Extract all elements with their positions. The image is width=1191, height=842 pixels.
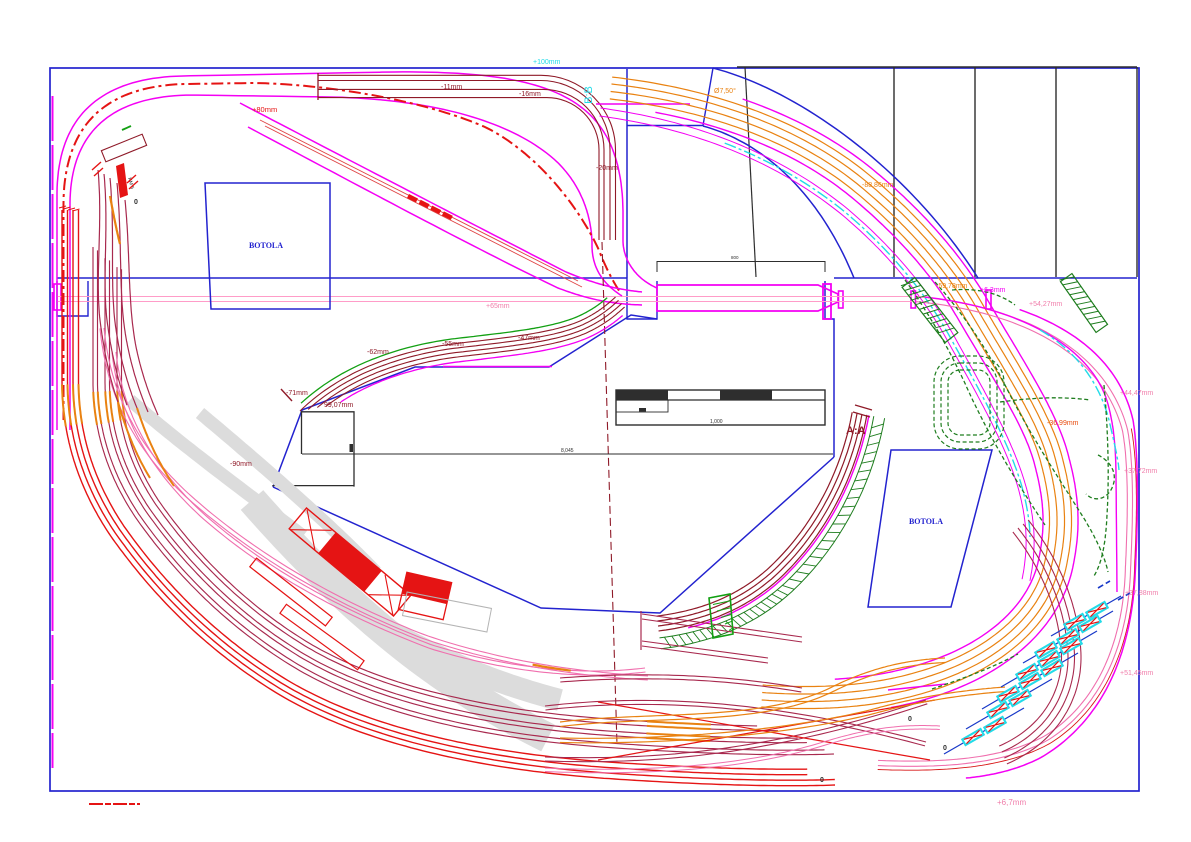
svg-text:0: 0 xyxy=(943,745,947,752)
svg-text:0: 0 xyxy=(820,777,824,784)
svg-text:+44,47mm: +44,47mm xyxy=(1120,390,1153,397)
svg-text:+51,45mm: +51,45mm xyxy=(1120,670,1153,677)
svg-text:-88,86mm: -88,86mm xyxy=(862,182,894,189)
svg-text:-71mm: -71mm xyxy=(286,390,308,397)
svg-text:+37,88mm: +37,88mm xyxy=(1125,590,1158,597)
svg-text:B:B: B:B xyxy=(583,86,595,104)
svg-text:-20mm: -20mm xyxy=(596,165,618,172)
svg-text:-16mm: -16mm xyxy=(519,91,541,98)
svg-text:-62mm: -62mm xyxy=(367,349,389,356)
svg-text:+6,3mm: +6,3mm xyxy=(980,287,1006,294)
svg-text:A:A: A:A xyxy=(846,425,866,437)
svg-text:BOTOLA: BOTOLA xyxy=(909,517,943,526)
svg-text:-36,99mm: -36,99mm xyxy=(1047,420,1079,427)
svg-text:+100mm: +100mm xyxy=(533,59,561,66)
svg-text:-55mm: -55mm xyxy=(442,341,464,348)
svg-text:99,07mm: 99,07mm xyxy=(324,402,353,409)
svg-text:0: 0 xyxy=(134,199,138,206)
svg-text:+80mm: +80mm xyxy=(252,105,277,114)
svg-text:BOTOLA: BOTOLA xyxy=(249,241,283,250)
svg-text:+6,7mm: +6,7mm xyxy=(997,798,1026,807)
svg-text:+37,72mm: +37,72mm xyxy=(1124,468,1157,475)
svg-text:-11mm: -11mm xyxy=(441,84,462,91)
svg-text:1,000: 1,000 xyxy=(710,419,723,425)
svg-text:-90mm: -90mm xyxy=(230,461,252,468)
svg-text:+65mm: +65mm xyxy=(486,303,510,310)
svg-text:-47mm: -47mm xyxy=(518,335,540,342)
svg-text:Ø7,50°: Ø7,50° xyxy=(714,87,736,95)
svg-text:8,045: 8,045 xyxy=(561,448,574,454)
svg-text:800: 800 xyxy=(731,255,739,260)
svg-text:+54,27mm: +54,27mm xyxy=(1029,301,1062,308)
svg-text:0: 0 xyxy=(908,716,912,723)
svg-text:-59,78mm: -59,78mm xyxy=(936,283,968,290)
